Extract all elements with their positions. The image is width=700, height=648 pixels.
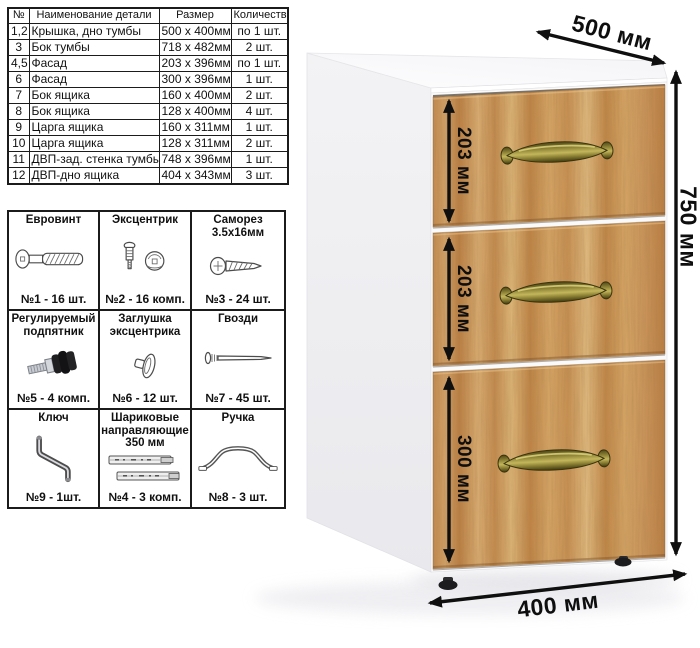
part-qty: 3 шт. — [231, 168, 288, 185]
parts-table: № Наименование детали Размер Количество … — [7, 7, 289, 185]
part-size: 160 х 400мм — [159, 88, 231, 104]
hardware-title: Евровинт — [26, 214, 82, 227]
part-size: 718 х 482мм — [159, 40, 231, 56]
hardware-cell-adjustable-foot: Регулируемый подпятник — [8, 310, 99, 409]
part-number: 1,2 — [8, 24, 29, 40]
part-row: 10Царга ящика128 х 311мм2 шт. — [8, 136, 288, 152]
handle-icon — [196, 425, 280, 490]
part-qty: по 1 шт. — [231, 24, 288, 40]
hardware-cell-self-tapping-screw: Саморез 3.5х16мм — [191, 211, 285, 310]
parts-header-row: № Наименование детали Размер Количество — [8, 8, 288, 24]
part-name: Крышка, дно тумбы — [29, 24, 159, 40]
hardware-cell-hex-key: Ключ №9 - 1шт. — [8, 409, 99, 508]
part-qty: 1 шт. — [231, 72, 288, 88]
hardware-qty: №5 - 4 комп. — [17, 391, 90, 405]
part-qty: 1 шт. — [231, 152, 288, 168]
part-number: 4,5 — [8, 56, 29, 72]
hardware-cell-euro-screw: Евровинт — [8, 211, 99, 310]
col-header-size: Размер — [159, 8, 231, 24]
hardware-qty: №7 - 45 шт. — [205, 391, 271, 405]
part-name: ДВП-зад. стенка тумбы — [29, 152, 159, 168]
part-number: 12 — [8, 168, 29, 185]
part-row: 11ДВП-зад. стенка тумбы748 х 396мм1 шт. — [8, 152, 288, 168]
euro-screw-icon — [14, 227, 94, 292]
part-name: Фасад — [29, 72, 159, 88]
part-row: 12ДВП-дно ящика404 х 343мм3 шт. — [8, 168, 288, 185]
part-number: 9 — [8, 120, 29, 136]
hardware-title: Ручка — [222, 412, 255, 425]
part-row: 3Бок тумбы718 х 482мм2 шт. — [8, 40, 288, 56]
hardware-qty: №9 - 1шт. — [26, 490, 82, 504]
part-name: Фасад — [29, 56, 159, 72]
hardware-qty: №1 - 16 шт. — [21, 292, 87, 306]
part-number: 10 — [8, 136, 29, 152]
part-row: 8Бок ящика128 х 400мм4 шт. — [8, 104, 288, 120]
hardware-title: Регулируемый подпятник — [10, 313, 97, 338]
part-number: 3 — [8, 40, 29, 56]
nail-icon — [201, 326, 275, 391]
hardware-title: Ключ — [38, 412, 68, 425]
ball-slides-icon — [105, 450, 185, 490]
part-size: 748 х 396мм — [159, 152, 231, 168]
part-row: 6Фасад300 х 396мм1 шт. — [8, 72, 288, 88]
col-header-quantity: Количество — [231, 8, 288, 24]
part-name: Царга ящика — [29, 136, 159, 152]
part-size: 128 х 311мм — [159, 136, 231, 152]
part-qty: 2 шт. — [231, 40, 288, 56]
part-qty: 2 шт. — [231, 88, 288, 104]
part-number: 6 — [8, 72, 29, 88]
part-name: Царга ящика — [29, 120, 159, 136]
hardware-title: Саморез 3.5х16мм — [193, 214, 283, 239]
hardware-title: Гвозди — [218, 313, 258, 326]
hardware-cell-nail: Гвозди №7 - 45 шт. — [191, 310, 285, 409]
hardware-title: Заглушка эксцентрика — [101, 313, 189, 338]
self-tapping-screw-icon — [208, 239, 268, 292]
part-row: 4,5Фасад203 х 396ммпо 1 шт. — [8, 56, 288, 72]
hex-key-icon — [23, 425, 85, 490]
hardware-cell-cam-cap: Заглушка эксцентрика №6 - 12 шт. — [99, 310, 191, 409]
dimension-label-drawer-top: 203 мм — [452, 127, 474, 195]
hardware-table: Евровинт — [7, 210, 286, 509]
part-size: 160 х 311мм — [159, 120, 231, 136]
assembly-instruction-sheet: 500 мм 750 мм 400 мм 203 мм 203 мм 300 м… — [0, 0, 700, 648]
hardware-qty: №2 - 16 комп. — [105, 292, 185, 306]
part-number: 8 — [8, 104, 29, 120]
hardware-cell-ball-slides: Шариковые направляющие 350 мм — [99, 409, 191, 508]
part-size: 500 х 400мм — [159, 24, 231, 40]
part-number: 7 — [8, 88, 29, 104]
part-number: 11 — [8, 152, 29, 168]
part-size: 404 х 343мм — [159, 168, 231, 185]
part-name: ДВП-дно ящика — [29, 168, 159, 185]
dimension-label-height: 750 мм — [675, 186, 700, 268]
cam-lock-icon — [116, 227, 174, 292]
part-size: 203 х 396мм — [159, 56, 231, 72]
part-row: 1,2Крышка, дно тумбы500 х 400ммпо 1 шт. — [8, 24, 288, 40]
part-row: 7Бок ящика160 х 400мм2 шт. — [8, 88, 288, 104]
col-header-name: Наименование детали — [29, 8, 159, 24]
part-name: Бок ящика — [29, 88, 159, 104]
hardware-title: Шариковые направляющие 350 мм — [101, 412, 189, 450]
col-header-number: № — [8, 8, 29, 24]
cam-cap-icon — [123, 338, 167, 391]
dimension-label-drawer-bottom: 300 мм — [452, 435, 474, 503]
hardware-cell-cam-lock: Эксцентрик — [99, 211, 191, 310]
part-qty: по 1 шт. — [231, 56, 288, 72]
part-size: 128 х 400мм — [159, 104, 231, 120]
part-size: 300 х 396мм — [159, 72, 231, 88]
part-qty: 4 шт. — [231, 104, 288, 120]
dimension-label-drawer-middle: 203 мм — [452, 265, 474, 333]
hardware-title: Эксцентрик — [112, 214, 178, 227]
hardware-cell-handle: Ручка №8 - 3 шт. — [191, 409, 285, 508]
side-panel — [307, 53, 431, 572]
hardware-qty: №4 - 3 комп. — [108, 490, 181, 504]
part-qty: 1 шт. — [231, 120, 288, 136]
hardware-qty: №8 - 3 шт. — [209, 490, 268, 504]
floor-shadow — [255, 569, 685, 615]
part-name: Бок ящика — [29, 104, 159, 120]
part-qty: 2 шт. — [231, 136, 288, 152]
hardware-qty: №6 - 12 шт. — [112, 391, 178, 405]
hardware-qty: №3 - 24 шт. — [205, 292, 271, 306]
part-name: Бок тумбы — [29, 40, 159, 56]
part-row: 9Царга ящика160 х 311мм1 шт. — [8, 120, 288, 136]
adjustable-foot-icon — [22, 338, 86, 391]
